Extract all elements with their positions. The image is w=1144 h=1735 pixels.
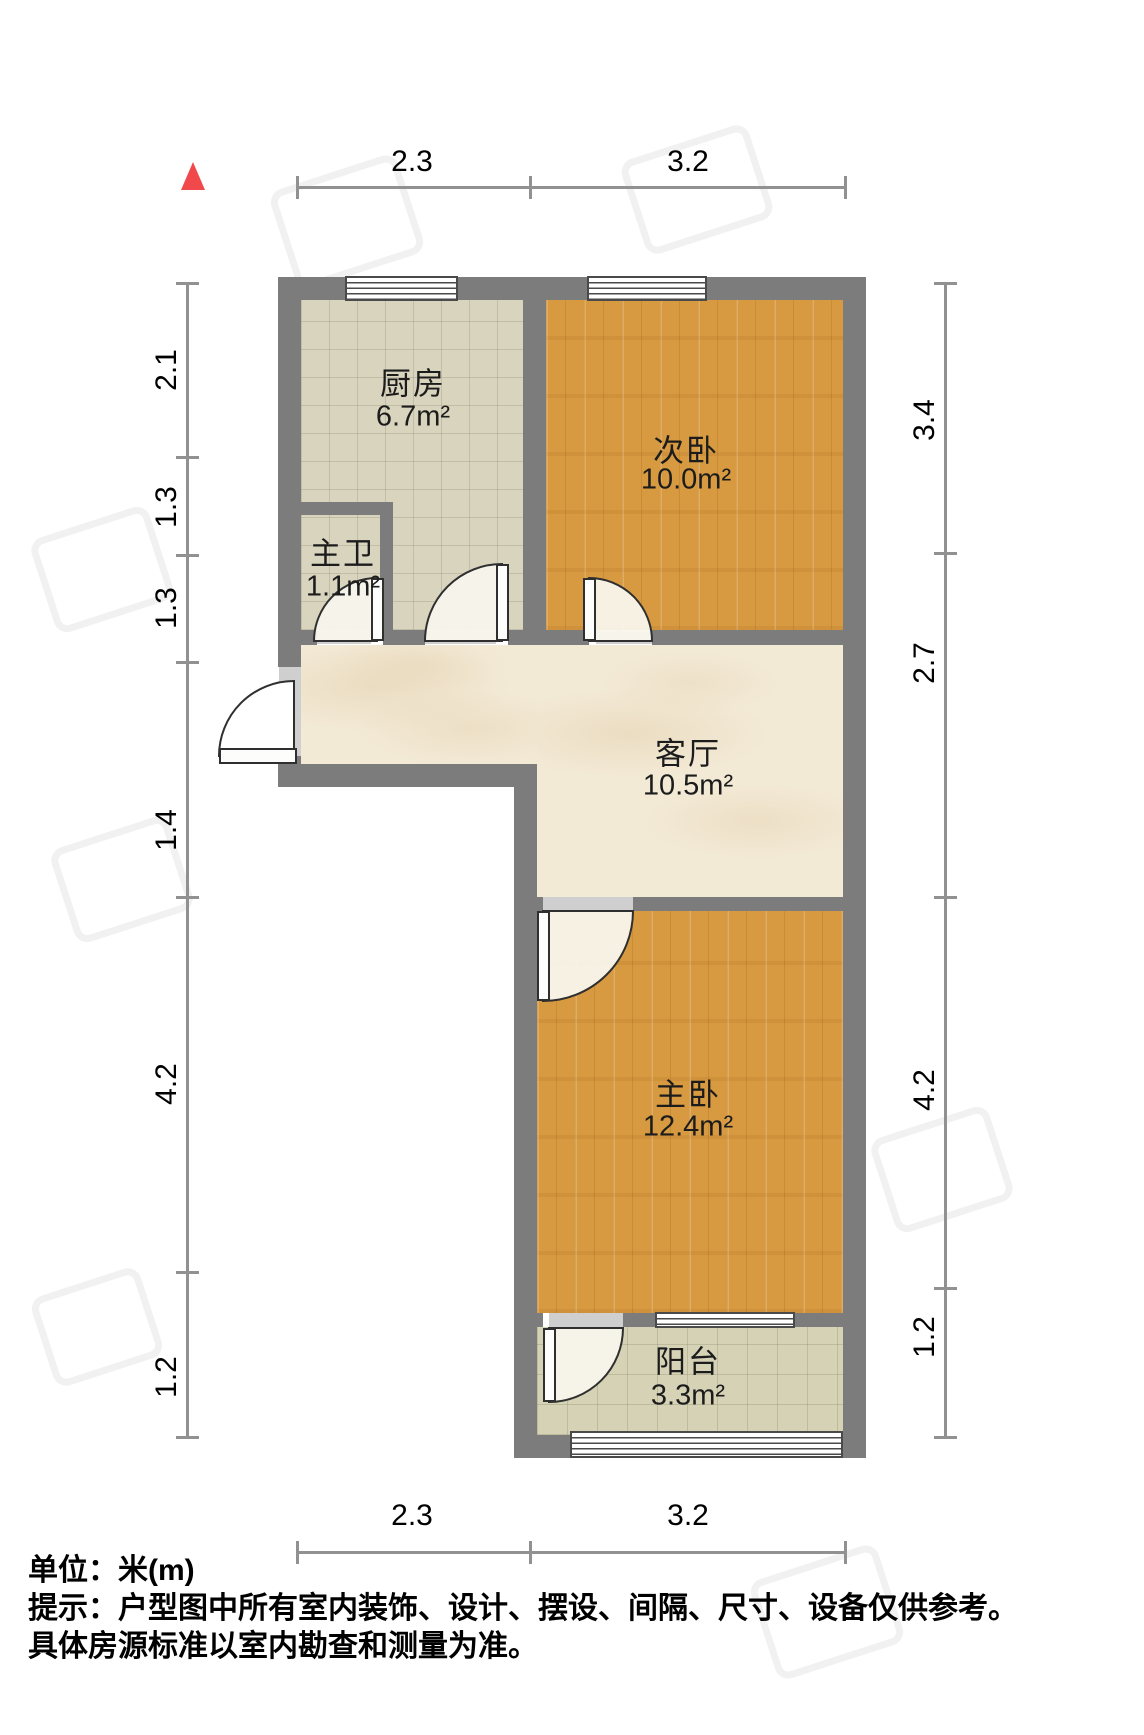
dim-tick bbox=[934, 282, 957, 285]
bedroom1-door-threshold bbox=[543, 897, 633, 911]
wall-hallway-seg bbox=[652, 630, 843, 645]
dim-label-right-2: 2.7 bbox=[908, 642, 942, 684]
wall-bathroom-top bbox=[301, 502, 393, 515]
dim-tick bbox=[529, 176, 532, 199]
wall-right bbox=[843, 277, 866, 1458]
wall-left-upper bbox=[278, 277, 301, 667]
dim-tick bbox=[296, 176, 299, 199]
kitchen-door-leaf bbox=[496, 564, 509, 641]
north-arrow-icon bbox=[181, 162, 205, 190]
kitchen-window bbox=[345, 276, 458, 301]
balcony-label: 阳台 bbox=[655, 1337, 721, 1382]
dim-label-left-5: 4.2 bbox=[150, 1063, 184, 1105]
bathroom-door-threshold bbox=[317, 631, 371, 644]
balcony-area: 3.3m² bbox=[651, 1380, 725, 1413]
floor-plan-canvas: 厨房 6.7m² 主卫 1.1m² 次卧 10.0m² 客厅 10.5m² 主卧… bbox=[0, 0, 1144, 1735]
dim-line-right bbox=[944, 283, 947, 1438]
dim-label-top-1: 2.3 bbox=[391, 145, 433, 179]
tip-line-1: 提示：户型图中所有室内装饰、设计、摆设、间隔、尺寸、设备仅供参考。 bbox=[28, 1590, 1018, 1628]
dim-label-left-1: 2.1 bbox=[150, 349, 184, 391]
dim-label-right-1: 3.4 bbox=[908, 399, 942, 441]
dim-tick bbox=[176, 554, 199, 557]
dim-tick bbox=[934, 896, 957, 899]
wall-hallway-seg bbox=[508, 630, 523, 645]
dim-label-right-3: 4.2 bbox=[908, 1069, 942, 1111]
dim-label-right-4: 1.2 bbox=[908, 1316, 942, 1358]
dim-label-left-4: 1.4 bbox=[150, 809, 184, 851]
bedroom2-area: 10.0m² bbox=[641, 464, 731, 497]
wall-hallway-seg bbox=[383, 630, 425, 645]
bathroom-area: 1.1m² bbox=[306, 571, 380, 604]
dim-label-left-3: 1.3 bbox=[150, 587, 184, 629]
bedroom2-window bbox=[587, 276, 707, 301]
bedroom1-area: 12.4m² bbox=[643, 1111, 733, 1144]
bedroom1-door-leaf bbox=[537, 911, 550, 1001]
dim-label-bottom-1: 2.3 bbox=[391, 1499, 433, 1533]
wall-balcony-seg bbox=[795, 1313, 843, 1327]
dim-label-left-6: 1.2 bbox=[150, 1356, 184, 1398]
wall-step-left bbox=[514, 764, 537, 1458]
dim-line-top bbox=[297, 186, 846, 189]
entry-door-leaf bbox=[219, 748, 297, 764]
bathroom-label: 主卫 bbox=[310, 529, 376, 574]
bedroom2-door-threshold bbox=[596, 631, 652, 644]
wall-bedroom1-top bbox=[633, 897, 843, 911]
dim-tick bbox=[176, 896, 199, 899]
dim-label-left-2: 1.3 bbox=[150, 486, 184, 528]
bedroom1-label: 主卧 bbox=[655, 1070, 721, 1115]
bedroom1-balcony-window bbox=[655, 1312, 795, 1328]
dim-tick bbox=[934, 1287, 957, 1290]
balcony-door-leaf bbox=[543, 1328, 556, 1402]
wall-balcony-seg bbox=[623, 1313, 655, 1327]
unit-note: 单位：米(m) bbox=[28, 1552, 1018, 1590]
dim-tick bbox=[934, 552, 957, 555]
living-area: 10.5m² bbox=[643, 770, 733, 803]
balcony-window bbox=[570, 1431, 843, 1458]
dim-label-bottom-2: 3.2 bbox=[667, 1499, 709, 1533]
bedroom2-door-leaf bbox=[583, 578, 596, 641]
tip-line-2: 具体房源标准以室内勘查和测量为准。 bbox=[28, 1628, 1018, 1666]
dim-tick bbox=[844, 176, 847, 199]
watermark bbox=[28, 1265, 165, 1390]
dim-tick bbox=[176, 661, 199, 664]
wall-living-bottom-left bbox=[278, 764, 537, 787]
living-room-floor-left bbox=[301, 645, 537, 764]
watermark bbox=[618, 122, 776, 258]
dim-tick bbox=[176, 1436, 199, 1439]
dim-tick bbox=[176, 456, 199, 459]
kitchen-label: 厨房 bbox=[380, 359, 446, 404]
wall-balcony-seg bbox=[537, 1313, 543, 1327]
balcony-door-threshold bbox=[549, 1313, 623, 1327]
entry-door-threshold bbox=[279, 667, 301, 756]
watermark bbox=[868, 1103, 1017, 1235]
kitchen-area: 6.7m² bbox=[376, 401, 450, 434]
dim-label-top-2: 3.2 bbox=[667, 145, 709, 179]
kitchen-door-threshold bbox=[425, 631, 496, 644]
dim-tick bbox=[176, 1271, 199, 1274]
living-label: 客厅 bbox=[655, 729, 721, 774]
footer-notes: 单位：米(m) 提示：户型图中所有室内装饰、设计、摆设、间隔、尺寸、设备仅供参考… bbox=[28, 1552, 1018, 1666]
dim-tick bbox=[176, 282, 199, 285]
wall-hallway-seg bbox=[301, 630, 317, 645]
wall-kitchen-bedroom2-divider bbox=[523, 300, 546, 645]
dim-tick bbox=[934, 1436, 957, 1439]
